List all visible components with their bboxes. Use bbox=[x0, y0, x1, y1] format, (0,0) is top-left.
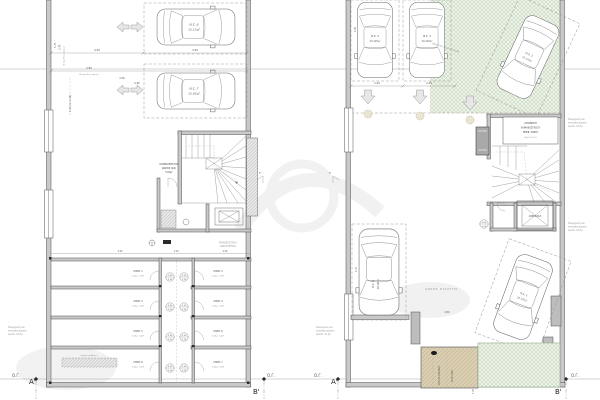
stair-store-area: (Εμβ.=3.1μ²) bbox=[524, 136, 537, 139]
machine-room-label: ΑΝΕΛΚΥΣΤΗΡΑ bbox=[220, 245, 236, 248]
section-label: Γ' bbox=[329, 171, 332, 175]
parking-area: 10.125μ² bbox=[422, 40, 433, 43]
equipment-symbol bbox=[163, 240, 171, 244]
og-label: Ο.Γ. bbox=[267, 373, 275, 378]
parking-id: Θ.Σ. 5 bbox=[371, 280, 375, 288]
door-tag-top: 0.90 bbox=[182, 275, 187, 277]
storage-area: 3.45μ² (καθ) bbox=[212, 366, 225, 369]
dim-label: 2.20 bbox=[223, 250, 228, 253]
dim-label: 0.90 bbox=[134, 82, 140, 85]
parking-stall-4: Θ.Σ. 4 10.125μ² bbox=[351, 0, 399, 81]
dim-label: 2.20 bbox=[118, 250, 123, 253]
storage-id: ΑΠΟΘ. 6 bbox=[213, 330, 223, 333]
common-space-area: 3.00μ² bbox=[165, 171, 173, 174]
shrub bbox=[416, 112, 424, 120]
car-top-view bbox=[488, 251, 557, 343]
storage-row-4: ΑΠΟΘ. 8 3.45μ² (καθ) ΑΠΟΘ. 7 3.45μ² (καθ… bbox=[132, 361, 225, 369]
dim-label: 2.56 bbox=[119, 77, 125, 80]
dim-label: 4.50 bbox=[444, 311, 450, 314]
door-tag-bottom: 2.20 bbox=[182, 370, 187, 372]
door-tags: 0.902.20 0.902.20 0.902.20 0.902.20 0.90… bbox=[166, 273, 188, 372]
dim-label: 1.50 bbox=[354, 27, 357, 32]
common-space-label: ΚΟΙΝΟΧΡΗΣΤΟΣ bbox=[159, 163, 179, 166]
common-space-label: ΧΩΡΟΣ (ΚΧ) bbox=[162, 167, 176, 170]
door-tag-bottom: 2.20 bbox=[168, 279, 173, 281]
door-tag-bottom: 2.20 bbox=[168, 339, 173, 341]
storage-id: ΑΠΟΘ. 5 bbox=[133, 330, 143, 333]
storage-area: 3.45μ² (καθ) bbox=[212, 335, 225, 338]
door-tag-bottom: 2.20 bbox=[182, 279, 187, 281]
door-tag-top: 0.90 bbox=[168, 305, 173, 307]
grate-note: (σχάρα ομβρίων) bbox=[80, 354, 97, 357]
og-label: Ο.Γ. bbox=[12, 373, 20, 378]
dim-label: 1.10 bbox=[174, 250, 179, 253]
storage-zone: ΑΠΟΘ. 1 3.45μ² (καθ) ΑΠΟΘ. 2 3.45μ² (καθ… bbox=[49, 257, 251, 384]
planted-area bbox=[478, 343, 560, 387]
storage-id: ΑΠΟΘ. 1 bbox=[133, 270, 143, 273]
parking-id: Θ.Σ. 7 bbox=[189, 87, 198, 91]
storage-id: ΑΠΟΘ. 3 bbox=[133, 300, 143, 303]
dim-label: 3.70 bbox=[59, 44, 62, 50]
architectural-drawing-sheet: Θ.Σ. 6 12.15μ² Θ.Σ. 7 12.65μ² 4.50 4.50 … bbox=[0, 0, 600, 400]
storage-area: 3.45μ² (καθ) bbox=[212, 275, 225, 278]
door-tag-top: 0.90 bbox=[168, 335, 173, 337]
note-line: κρασπ. 10.5μ bbox=[568, 229, 583, 232]
door-tag-top: 0.90 bbox=[182, 305, 187, 307]
party-wall-hatch bbox=[247, 138, 258, 216]
dim-note: (Β παρόδιος όψεως) bbox=[79, 73, 99, 76]
shrub bbox=[364, 110, 372, 118]
storage-area: 3.45μ² (καθ) bbox=[132, 366, 145, 369]
stair-store-labelbox: ΑΠΟΘΗΚΗ ΚΛΙΜΑΚΟΣΤΑΣΙΟΥ ΠΕΡΙΒ. ΧΩΡΟΥ (Εμβ… bbox=[503, 117, 558, 144]
stair-core bbox=[178, 131, 251, 204]
door-tag: 0.90 2.20 bbox=[480, 220, 488, 228]
parking-stall-7: Θ.Σ. 7 12.65μ² bbox=[144, 64, 247, 118]
boundary-note-1: Θεωρημένη και κατασκευασμένη κρασπ. 10.5… bbox=[8, 326, 27, 336]
dim-label: 2.25 bbox=[374, 81, 380, 85]
shrub bbox=[466, 116, 474, 124]
stair-store-label: ΚΛΙΜΑΚΟΣΤΑΣΙΟΥ bbox=[521, 127, 541, 130]
door-tag-top: 0.90 bbox=[182, 335, 187, 337]
section-b-marker: Β' bbox=[555, 388, 562, 396]
dim-label: 3.85 bbox=[86, 66, 92, 70]
storage-area: 3.45μ² (καθ) bbox=[212, 305, 225, 308]
corridor-dimensions: 2.20 1.10 2.20 bbox=[51, 250, 251, 254]
ramp: ΡΑΜΠΑ ΚΑΘΟΔΟΥ ΚΛΙΣΗ 18% bbox=[421, 347, 478, 388]
dim-note: (Δ παρόδιος όψεως) bbox=[63, 46, 66, 66]
parking-area: 12.65μ² bbox=[188, 92, 200, 96]
parking-id: Θ.Σ. 4 bbox=[371, 34, 379, 38]
car-top-view bbox=[356, 229, 402, 315]
note-line: κρασπ. 10.5μ bbox=[8, 333, 23, 336]
storage-area: 3.45μ² (καθ) bbox=[132, 335, 145, 338]
storage-id: ΑΠΟΘ. 8 bbox=[133, 361, 143, 364]
note-line: κρασπ. 10.5μ bbox=[568, 125, 583, 128]
door-tag-top: 0.90 bbox=[168, 275, 173, 277]
storage-id: ΑΠΟΘ. 7 bbox=[213, 361, 223, 364]
column bbox=[411, 312, 420, 344]
storage-area: 3.45μ² (καθ) bbox=[132, 305, 145, 308]
dim-label: 1.45 bbox=[355, 267, 358, 272]
parking-area: 10.125μ² bbox=[377, 279, 380, 290]
parking-stall-3: Θ.Σ. 3 10.125μ² bbox=[403, 0, 451, 81]
storage-row-3: ΑΠΟΘ. 5 3.45μ² (καθ) ΑΠΟΘ. 6 3.45μ² (καθ… bbox=[132, 330, 225, 338]
wall-pier bbox=[551, 296, 561, 326]
parking-stall-6: Θ.Σ. 6 12.15μ² bbox=[144, 3, 247, 54]
left-plan: Θ.Σ. 6 12.15μ² Θ.Σ. 7 12.65μ² 4.50 4.50 … bbox=[45, 0, 264, 387]
boundary-note-3: Θεωρημένη και κατασκευασμένη κρασπ. 10.5… bbox=[568, 118, 587, 128]
door-tag-bottom: 2.20 bbox=[182, 339, 187, 341]
dim-label: 5.75 bbox=[54, 42, 57, 48]
boundary-note-4: Θεωρημένη και κατασκευασμένη κρασπ. 10.5… bbox=[568, 222, 587, 232]
left-plan-walls bbox=[45, 0, 258, 387]
dim-label: 4.35 bbox=[472, 389, 475, 394]
boundary-note-2: Θεωρημένη και κατασκευασμένη κρασπ. 10.5… bbox=[316, 326, 335, 336]
door-tag-top: 0.90 bbox=[482, 222, 487, 224]
parking-area: 10.125μ² bbox=[370, 40, 381, 43]
section-b-marker: Β' bbox=[253, 388, 260, 396]
storage-id: ΑΠΟΘ. 4 bbox=[213, 300, 223, 303]
fixture-circle bbox=[183, 219, 189, 225]
door-tag-top: 0.90 bbox=[182, 366, 187, 368]
dim-label: 4.50 bbox=[94, 48, 100, 52]
parking-id: Θ.Σ. 6 bbox=[189, 23, 198, 27]
og-label: Ο.Γ. bbox=[314, 373, 322, 378]
elevator-label: ΑΝΕΛΚ/ΡΑΣ bbox=[529, 215, 542, 218]
door-tag-top: 0.90 bbox=[168, 366, 173, 368]
common-space: ΚΟΙΝΟΧΡΗΣΤΟΣ ΧΩΡΟΣ (ΚΧ) 3.00μ² bbox=[157, 163, 251, 232]
storage-row-1: ΑΠΟΘ. 1 3.45μ² (καθ) ΑΠΟΘ. 2 3.45μ² (καθ… bbox=[132, 270, 225, 278]
door-swing bbox=[168, 178, 177, 187]
dim-label: 1.40 (min 1.10) bbox=[69, 95, 72, 112]
stair-store-label: ΑΠΟΘΗΚΗ bbox=[524, 122, 537, 125]
dim-label: 4.50 bbox=[192, 48, 198, 52]
pilotis-label: ΧΩΡΟΣ ΠΙΛΟΤΗΣ bbox=[425, 287, 458, 291]
door-tag-bottom: 2.20 bbox=[182, 309, 187, 311]
parking-area: 12.15μ² bbox=[188, 28, 200, 32]
og-label: Ο.Γ. bbox=[571, 373, 579, 378]
fixture bbox=[161, 210, 176, 228]
door-tag-bottom: 2.20 bbox=[168, 370, 173, 372]
dim-label: 2.25 bbox=[426, 81, 432, 85]
ramp-marker bbox=[431, 351, 437, 355]
section-a-marker: Α' bbox=[331, 378, 338, 386]
door-tag-bottom: 2.20 bbox=[482, 226, 487, 228]
ramp-label: ΡΑΜΠΑ ΚΑΘΟΔΟΥ bbox=[438, 365, 441, 385]
stair-store-label: ΠΕΡΙΒ. ΧΩΡΟΥ bbox=[523, 131, 539, 134]
storage-row-2: ΑΠΟΘ. 3 3.45μ² (καθ) ΑΠΟΘ. 4 3.45μ² (καθ… bbox=[132, 300, 225, 308]
section-a-marker: Α' bbox=[29, 378, 36, 386]
door-tag-bottom: 2.20 bbox=[168, 309, 173, 311]
section-label: Γ' bbox=[259, 171, 262, 175]
parking-id: Θ.Σ. 3 bbox=[423, 34, 431, 38]
stair-core-right: ΑΠΟΘΗΚΗ ΚΛΙΜΑΚΟΣΤΑΣΙΟΥ ΠΕΡΙΒ. ΧΩΡΟΥ (Εμβ… bbox=[476, 114, 561, 206]
parking-stall-5: Θ.Σ. 5 10.125μ² bbox=[352, 224, 406, 320]
ramp-slope: ΚΛΙΣΗ 18% bbox=[451, 370, 454, 382]
section-flag-left: Γ' bbox=[257, 171, 263, 183]
storage-id: ΑΠΟΘ. 2 bbox=[213, 270, 223, 273]
note-line: κρασπ. 10.5μ bbox=[316, 333, 331, 336]
storage-area: 3.45μ² (καθ) bbox=[132, 275, 145, 278]
